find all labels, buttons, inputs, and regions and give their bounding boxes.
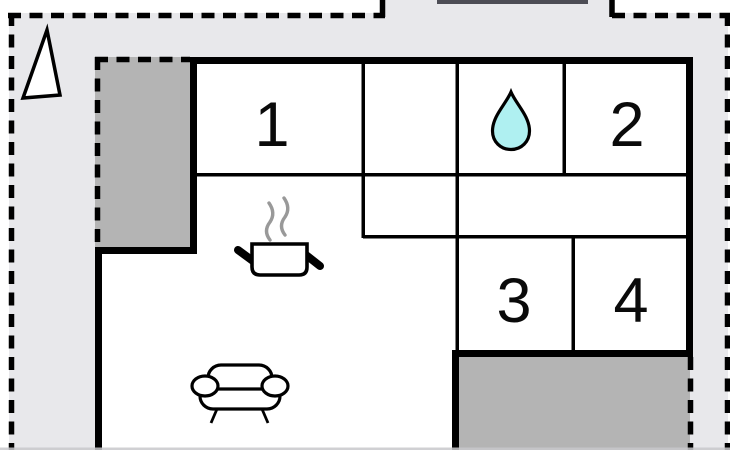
room-3-label: 3: [496, 266, 531, 336]
wall-room2-left: [563, 64, 567, 176]
sofa-armrest-left: [192, 376, 218, 396]
terrace-bottom-right: [455, 353, 690, 450]
wall-room3-room4: [572, 235, 576, 353]
wall-hallway-top: [193, 173, 690, 177]
wall-porch-bottom: [95, 247, 197, 254]
wall-bathroom-left: [456, 64, 460, 353]
plot-area-top: [9, 13, 728, 57]
room-2-label: 2: [609, 90, 644, 160]
wall-right: [686, 57, 693, 357]
wall-top: [190, 57, 693, 64]
wall-left-upper: [190, 57, 197, 254]
room-1-label: 1: [254, 90, 289, 160]
wall-terrace-left: [452, 350, 459, 450]
wall-hallway-bottom: [363, 235, 690, 239]
pot-body: [252, 244, 307, 275]
room-4-label: 4: [613, 266, 648, 336]
plot-area-notch: [382, 0, 612, 57]
plot-area-right: [690, 13, 728, 450]
wall-room1-right: [362, 64, 366, 238]
top-edge-structure: [437, 0, 588, 4]
floor-plan-canvas: 1 2 3 4: [0, 0, 730, 450]
sofa-armrest-right: [262, 376, 288, 396]
terrace-top-left: [95, 57, 190, 247]
wall-left-lower: [95, 247, 102, 450]
floor-plan: 1 2 3 4: [0, 0, 730, 450]
